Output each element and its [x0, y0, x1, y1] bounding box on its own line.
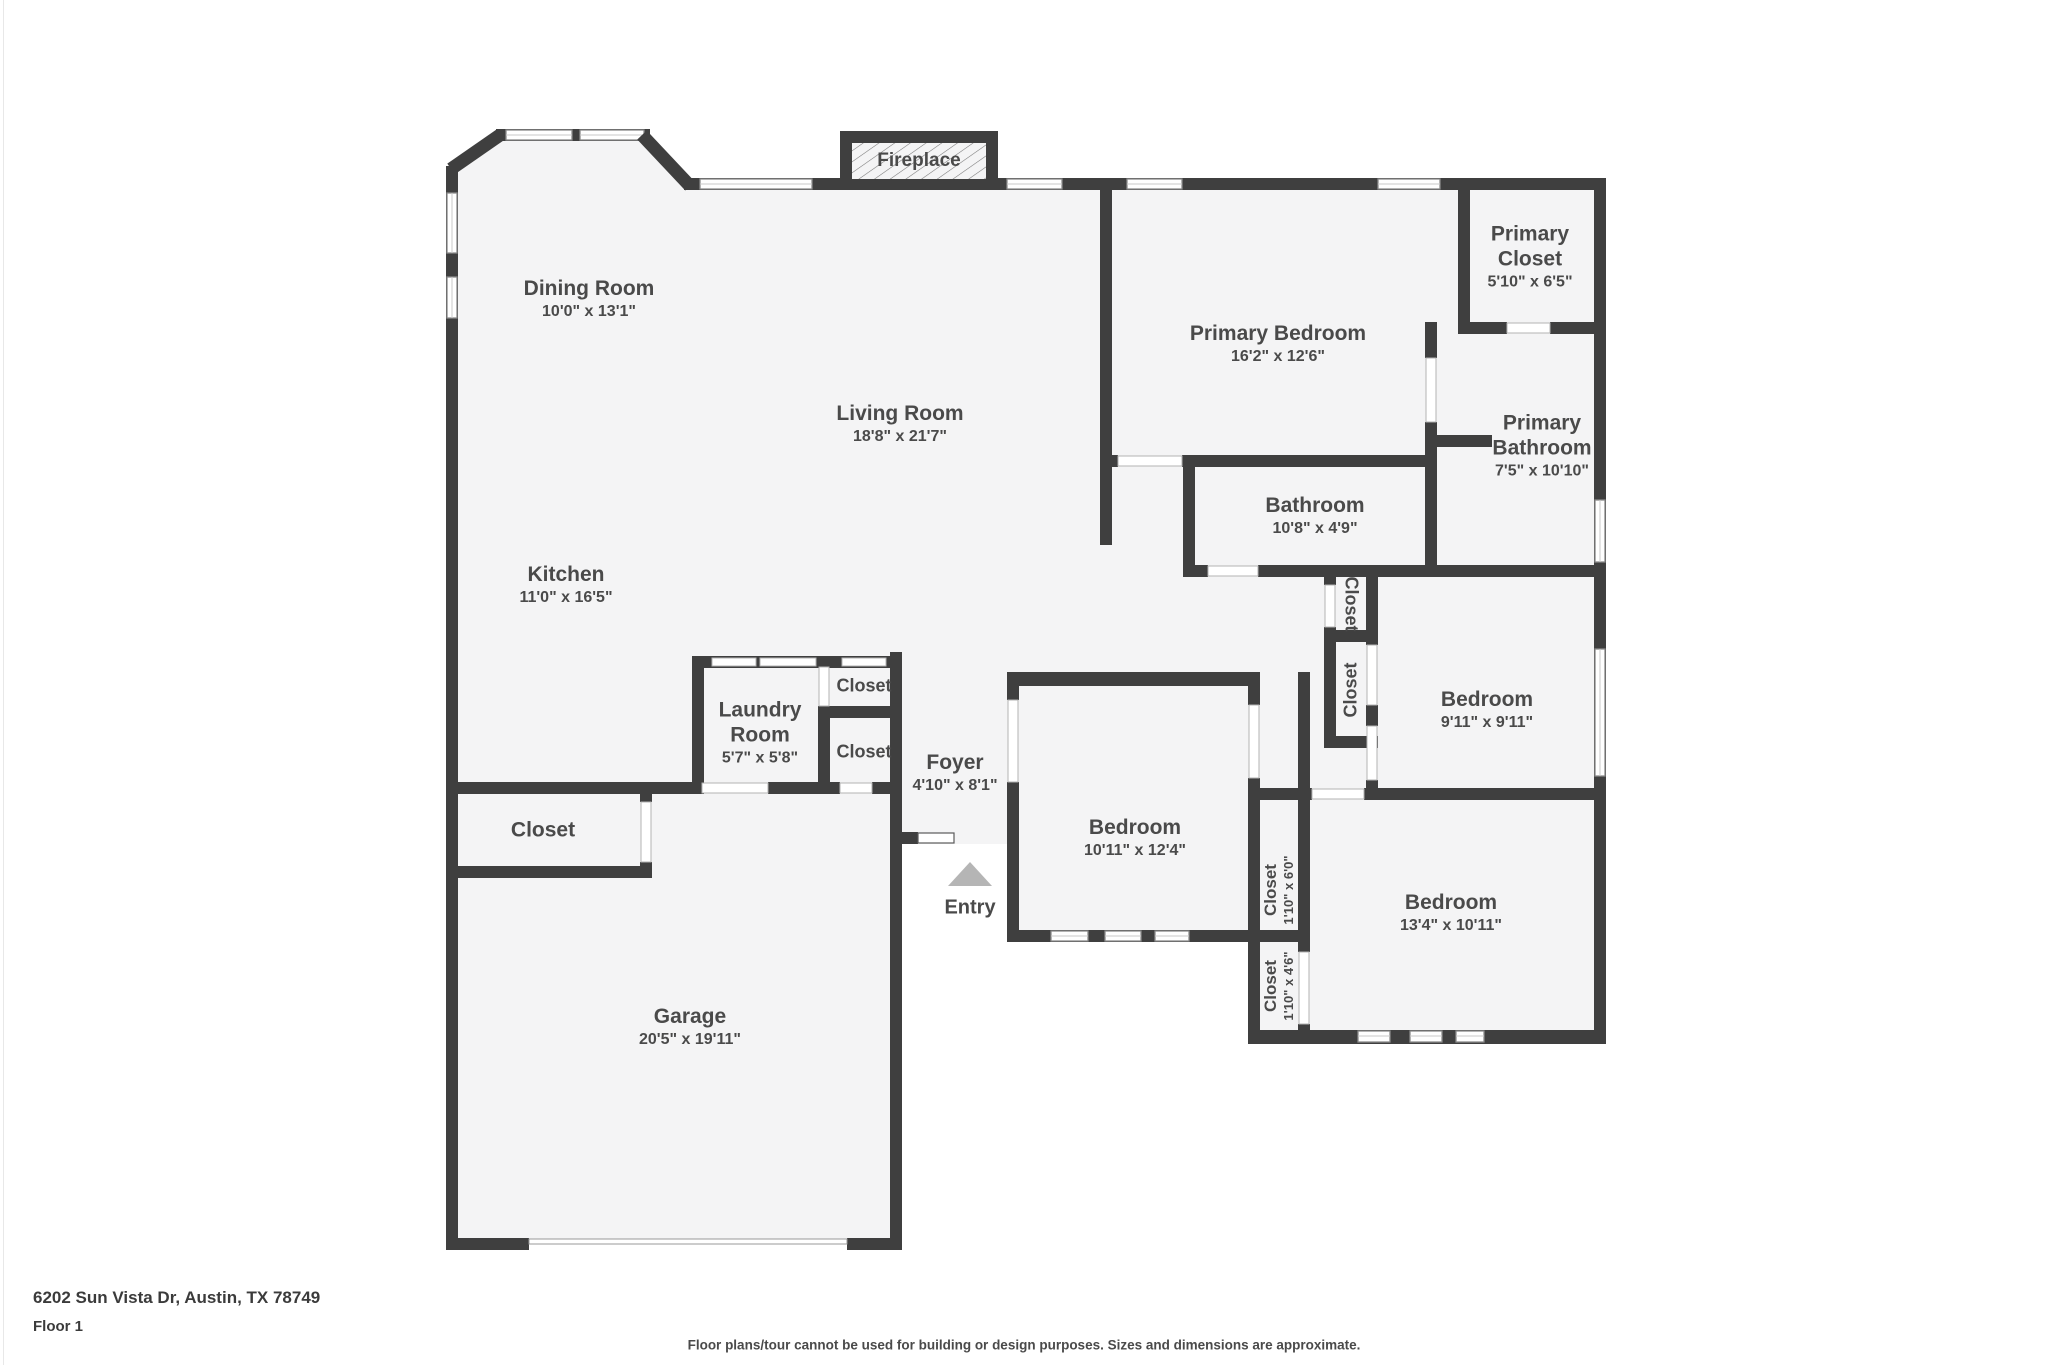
room-label-kitchen: Kitchen 11'0" x 16'5" [519, 562, 612, 608]
room-label-closet-lower: Closet [836, 740, 891, 765]
room-label-foyer: Foyer 4'10" x 8'1" [912, 750, 997, 796]
room-label-laundry-room: Laundry Room 5'7" x 5'8" [700, 698, 820, 769]
room-label-garage: Garage 20'5" x 19'11" [639, 1004, 741, 1050]
room-dims: 1'10" x 4'6" [1281, 951, 1297, 1020]
room-name: Closet [1261, 951, 1281, 1020]
room-label-closet-tall: Closet 1'10" x 6'0" [1261, 855, 1297, 924]
room-dims: 18'8" x 21'7" [836, 426, 963, 447]
footer-floor-label: Floor 1 [33, 1318, 83, 1335]
room-name: Garage [639, 1004, 741, 1029]
room-name: Bathroom [1265, 493, 1364, 518]
room-label-bedroom-bottom: Bedroom 13'4" x 10'11" [1400, 890, 1502, 936]
room-dims: 4'10" x 8'1" [912, 775, 997, 796]
room-name: Dining Room [524, 276, 655, 301]
room-label-hall-closet: Closet [511, 818, 575, 843]
room-dims: 1'10" x 6'0" [1281, 855, 1297, 924]
room-name: Closet [836, 740, 891, 765]
room-label-closet-small: Closet 1'10" x 4'6" [1261, 951, 1297, 1020]
room-name: Closet [836, 674, 891, 699]
room-name: Primary Bathroom [1472, 411, 1612, 461]
room-name: Closet [1339, 662, 1364, 717]
room-dims: 10'8" x 4'9" [1265, 518, 1364, 539]
floor-plan-drawing [0, 0, 2048, 1365]
room-dims: 5'10" x 6'5" [1470, 272, 1590, 293]
entry-door [918, 833, 954, 843]
room-name: Closet [511, 818, 575, 843]
room-label-closet-col-top: Closet [1339, 576, 1364, 631]
room-name: Closet [1339, 576, 1364, 631]
room-dims: 7'5" x 10'10" [1472, 461, 1612, 482]
room-name: Kitchen [519, 562, 612, 587]
room-label-bedroom-right: Bedroom 9'11" x 9'11" [1441, 687, 1533, 733]
footer-address: 6202 Sun Vista Dr, Austin, TX 78749 [33, 1288, 320, 1308]
room-label-primary-closet: Primary Closet 5'10" x 6'5" [1470, 222, 1590, 293]
room-name: Living Room [836, 401, 963, 426]
garage-door [529, 1239, 847, 1244]
room-label-primary-bedroom: Primary Bedroom 16'2" x 12'6" [1190, 321, 1366, 367]
fireplace-label: Fireplace [877, 150, 960, 172]
room-label-bathroom: Bathroom 10'8" x 4'9" [1265, 493, 1364, 539]
room-name: Closet [1261, 855, 1281, 924]
room-name: Bedroom [1084, 815, 1186, 840]
room-label-living-room: Living Room 18'8" x 21'7" [836, 401, 963, 447]
room-dims: 9'11" x 9'11" [1441, 712, 1533, 733]
room-dims: 10'11" x 12'4" [1084, 840, 1186, 861]
room-dims: 13'4" x 10'11" [1400, 915, 1502, 936]
room-name: Bedroom [1400, 890, 1502, 915]
room-name: Laundry Room [700, 698, 820, 748]
room-name: Primary Closet [1470, 222, 1590, 272]
room-dims: 5'7" x 5'8" [700, 748, 820, 769]
room-dims: 11'0" x 16'5" [519, 587, 612, 608]
room-label-dining-room: Dining Room 10'0" x 13'1" [524, 276, 655, 322]
entry-label: Entry [944, 897, 995, 920]
room-label-bedroom-center: Bedroom 10'11" x 12'4" [1084, 815, 1186, 861]
footer-disclaimer: Floor plans/tour cannot be used for buil… [688, 1338, 1361, 1353]
room-dims: 20'5" x 19'11" [639, 1029, 741, 1050]
entry-arrow-icon [948, 862, 992, 886]
room-label-closet-col-bottom: Closet [1339, 662, 1364, 717]
room-name: Bedroom [1441, 687, 1533, 712]
room-label-closet-upper: Closet [836, 674, 891, 699]
room-name: Foyer [912, 750, 997, 775]
room-label-primary-bathroom: Primary Bathroom 7'5" x 10'10" [1472, 411, 1612, 482]
room-name: Primary Bedroom [1190, 321, 1366, 346]
room-dims: 16'2" x 12'6" [1190, 346, 1366, 367]
floor-plan-page: Dining Room 10'0" x 13'1" Living Room 18… [0, 0, 2048, 1365]
room-dims: 10'0" x 13'1" [524, 301, 655, 322]
